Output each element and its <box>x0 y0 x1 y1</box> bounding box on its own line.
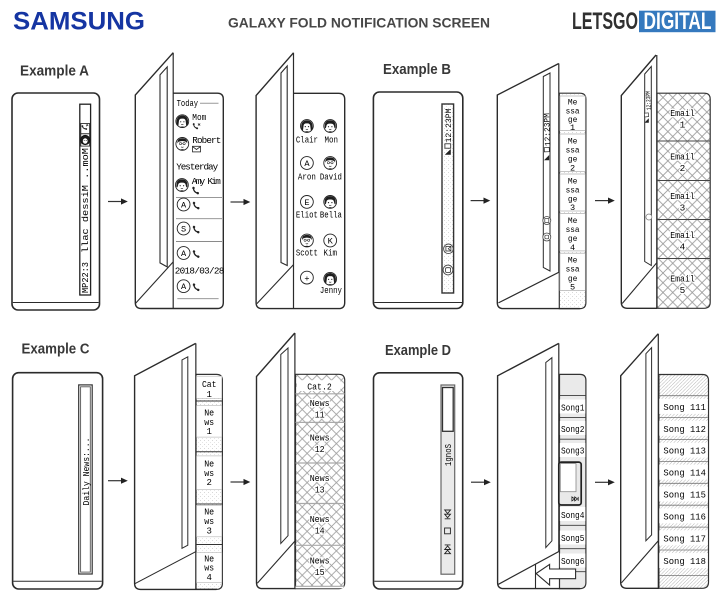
svg-text:Song4: Song4 <box>561 510 585 521</box>
svg-text:Today: Today <box>177 98 199 109</box>
svg-text:K: K <box>328 237 334 247</box>
svg-text:1gnoS: 1gnoS <box>444 444 454 466</box>
svg-text:Song3: Song3 <box>561 446 585 457</box>
svg-text:Mon: Mon <box>325 136 339 146</box>
svg-text:News: News <box>310 433 330 444</box>
svg-text:Song5: Song5 <box>561 533 585 544</box>
svg-text:4: 4 <box>680 242 686 253</box>
svg-text:Clair: Clair <box>296 136 318 146</box>
svg-text:14: 14 <box>315 526 325 537</box>
svg-text:Email: Email <box>670 152 695 163</box>
svg-text:12:23PM: 12:23PM <box>445 108 454 142</box>
svg-text:4: 4 <box>570 243 575 253</box>
svg-text:A: A <box>181 249 187 259</box>
svg-text:+: + <box>304 274 309 284</box>
svg-text:A: A <box>304 159 310 169</box>
svg-text:Daily News:...: Daily News:... <box>82 438 92 506</box>
svg-text:Mom: Mom <box>192 112 206 123</box>
svg-text:Email: Email <box>670 191 695 202</box>
svg-text:12:23PM: 12:23PM <box>645 91 653 110</box>
svg-text:Song 111: Song 111 <box>663 403 706 413</box>
svg-text:2: 2 <box>570 164 575 174</box>
svg-text:4: 4 <box>206 573 211 583</box>
svg-text:Song2: Song2 <box>561 424 585 435</box>
svg-text:Example D: Example D <box>385 343 451 359</box>
svg-text:Aron: Aron <box>298 173 316 183</box>
svg-text:Example A: Example A <box>20 64 89 80</box>
svg-text:MP22:3: MP22:3 <box>81 262 91 293</box>
svg-text:SAMSUNG: SAMSUNG <box>13 8 145 36</box>
svg-text:S: S <box>181 225 186 235</box>
svg-text:Song 113: Song 113 <box>663 447 706 457</box>
svg-text:Jenny: Jenny <box>320 286 342 296</box>
svg-text:1: 1 <box>570 123 575 133</box>
svg-text:DIGITAL: DIGITAL <box>644 8 712 35</box>
svg-text:3: 3 <box>206 526 211 536</box>
svg-text:Eliot: Eliot <box>296 211 318 221</box>
svg-text:Email: Email <box>670 108 695 119</box>
svg-text:Song 118: Song 118 <box>663 557 706 567</box>
svg-text:15: 15 <box>315 567 325 578</box>
svg-text:LETSGO: LETSGO <box>572 8 638 35</box>
svg-text:1: 1 <box>680 120 686 131</box>
svg-text:13: 13 <box>315 484 325 495</box>
svg-text:Song 112: Song 112 <box>663 425 706 435</box>
svg-text:2: 2 <box>206 478 211 488</box>
svg-text:Kim: Kim <box>323 249 337 259</box>
svg-text:E: E <box>304 198 309 208</box>
svg-text:News: News <box>310 398 330 409</box>
svg-text:1: 1 <box>206 427 211 437</box>
svg-text:Robert: Robert <box>192 135 221 146</box>
svg-text:5: 5 <box>680 285 686 296</box>
svg-text:Example C: Example C <box>22 342 90 358</box>
svg-text:Email: Email <box>670 274 695 285</box>
svg-text:Scott: Scott <box>296 249 318 259</box>
svg-text:Song6: Song6 <box>561 556 585 567</box>
svg-text:Cat: Cat <box>202 380 217 390</box>
svg-text:Song1: Song1 <box>561 402 585 413</box>
svg-text:12:23PM: 12:23PM <box>543 113 553 146</box>
svg-text:News: News <box>310 514 330 525</box>
svg-text:3: 3 <box>680 203 686 214</box>
svg-text:2018/03/28: 2018/03/28 <box>175 266 225 277</box>
svg-text:Amy Kim: Amy Kim <box>192 176 221 187</box>
svg-text:Song 116: Song 116 <box>663 512 706 522</box>
svg-text:Cat.2: Cat.2 <box>307 381 332 392</box>
svg-text:Bella: Bella <box>320 211 342 221</box>
svg-text:5: 5 <box>570 283 575 293</box>
svg-text:Song 115: Song 115 <box>663 491 706 501</box>
svg-text:David: David <box>320 173 342 183</box>
svg-text:11: 11 <box>315 409 325 420</box>
svg-text:Example B: Example B <box>383 62 451 78</box>
svg-text:A: A <box>181 282 187 292</box>
svg-text:3: 3 <box>570 203 575 213</box>
svg-text:llac dessiM ..moM: llac dessiM ..moM <box>81 148 91 253</box>
svg-text:Song 114: Song 114 <box>663 469 706 479</box>
svg-text:News: News <box>310 473 330 484</box>
svg-text:12: 12 <box>315 444 325 455</box>
svg-text:2: 2 <box>680 163 686 174</box>
svg-text:A: A <box>181 201 187 211</box>
svg-text:Yesterday: Yesterday <box>176 162 218 173</box>
svg-text:GALAXY FOLD NOTIFICATION SCREE: GALAXY FOLD NOTIFICATION SCREEN <box>228 16 490 31</box>
svg-text:Song 117: Song 117 <box>663 534 706 544</box>
svg-text:News: News <box>310 556 330 567</box>
svg-text:1: 1 <box>206 390 211 400</box>
svg-text:Email: Email <box>670 230 695 241</box>
